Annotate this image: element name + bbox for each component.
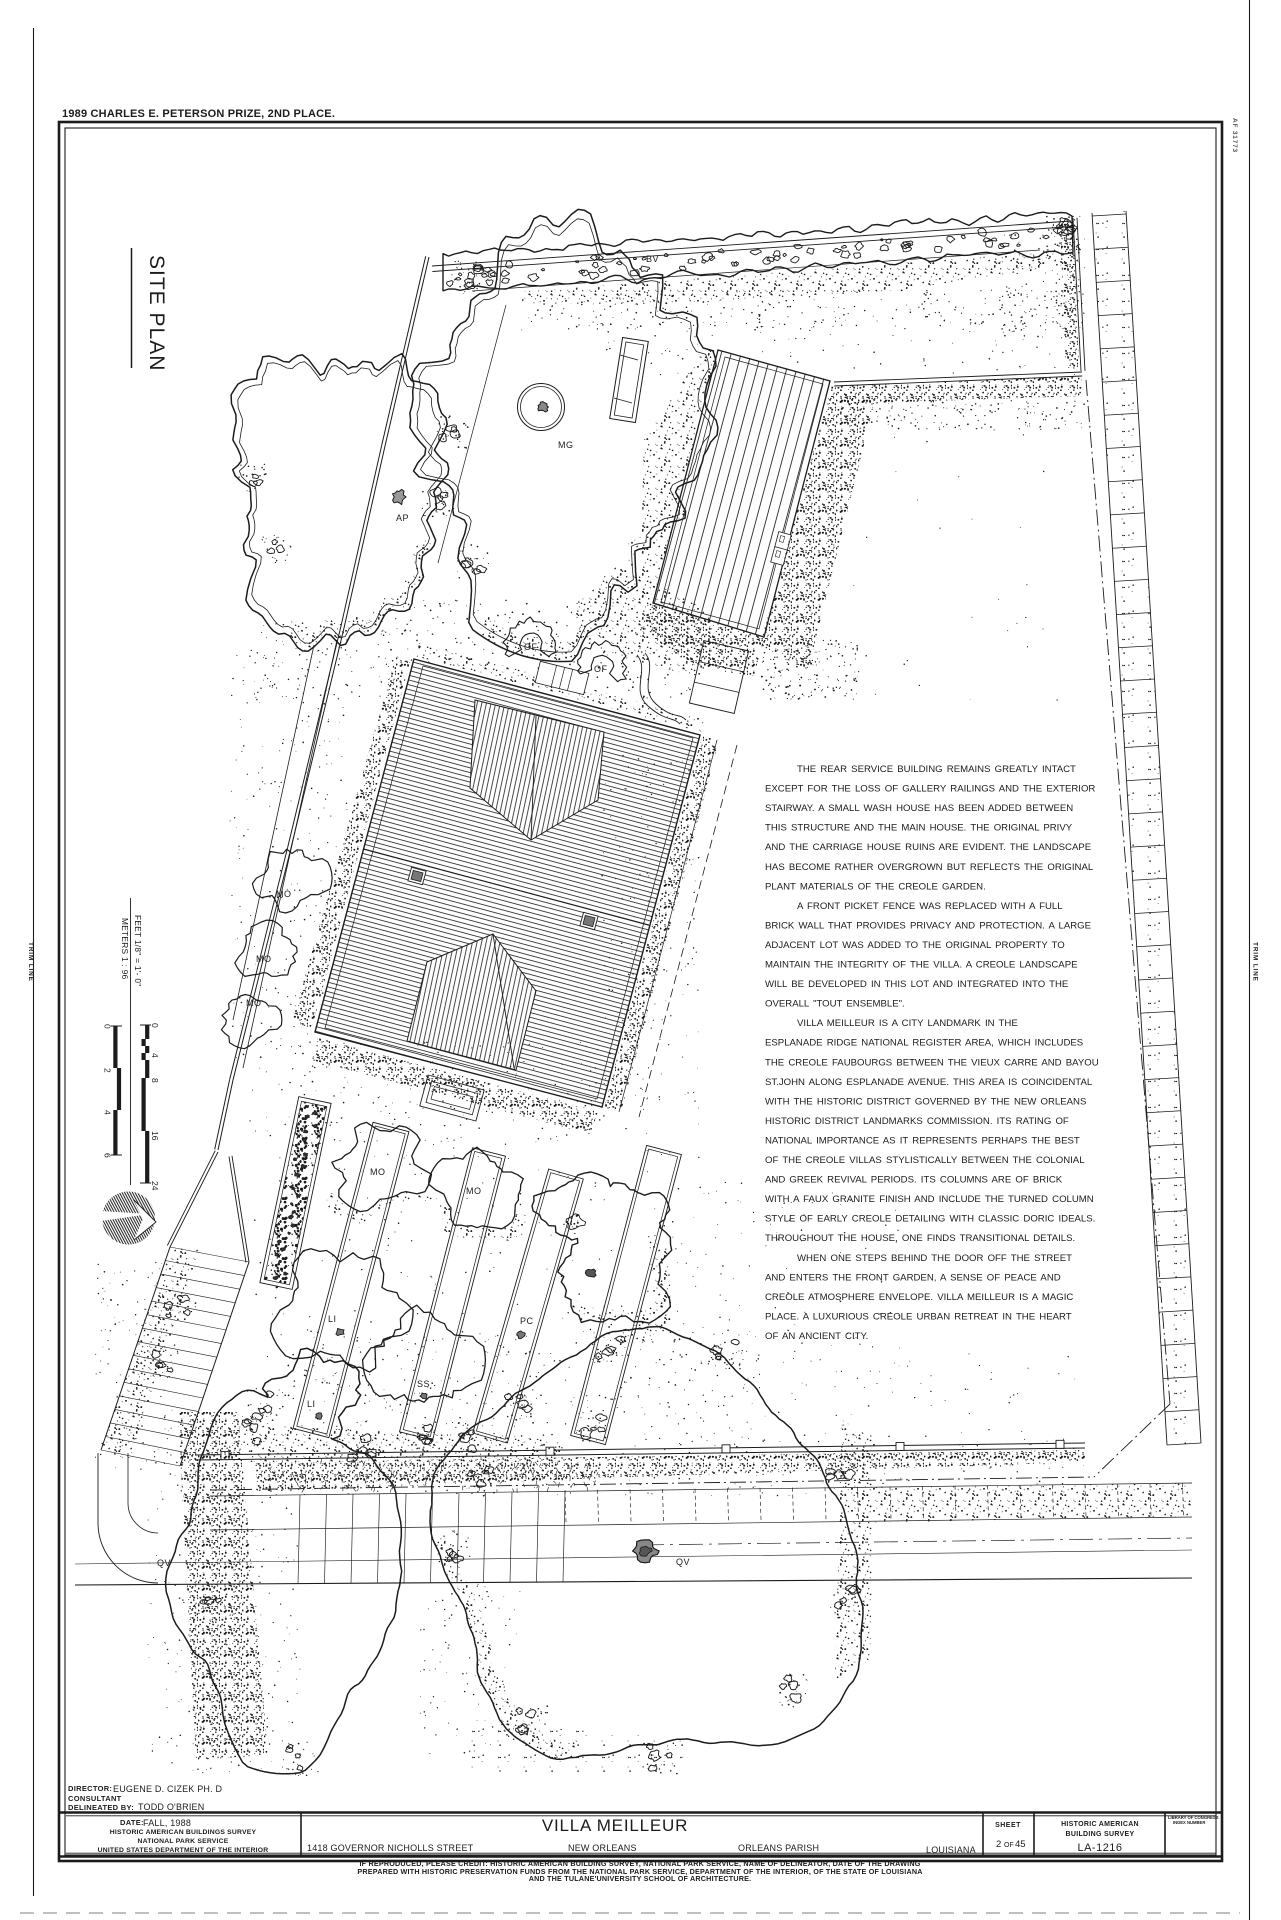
svg-text:STAIRWAY. A SMALL WASH HO: STAIRWAY. A SMALL WASH HOUSE HAS BEEN AD… <box>765 803 1073 814</box>
svg-text:HISTORIC AMERICAN BUILDINGS SU: HISTORIC AMERICAN BUILDINGS SURVEY <box>110 1829 257 1836</box>
svg-text:BV: BV <box>646 254 659 264</box>
svg-text:6: 6 <box>103 1153 113 1158</box>
svg-text:2: 2 <box>996 1839 1001 1850</box>
svg-text:HISTORIC DISTRICT LANDMARKS: HISTORIC DISTRICT LANDMARKS COMMISSION. … <box>765 1116 1069 1127</box>
svg-text:THE REAR SERVICE BUILDING: THE REAR SERVICE BUILDING REMAINS GREATL… <box>797 764 1076 775</box>
svg-text:LI: LI <box>307 1399 316 1409</box>
svg-text:16: 16 <box>150 1131 160 1141</box>
svg-text:MO: MO <box>246 998 262 1008</box>
svg-text:24: 24 <box>150 1181 160 1191</box>
svg-text:PLACE. A LUXURIOUS CREOLE: PLACE. A LUXURIOUS CREOLE URBAN RETREAT … <box>765 1311 1072 1322</box>
svg-text:HISTORIC AMERICAN: HISTORIC AMERICAN <box>1061 1821 1139 1828</box>
svg-text:OF AN ANCIENT CITY.: OF AN ANCIENT CITY. <box>765 1331 868 1342</box>
svg-text:EUGENE D. CIZEK PH. D: EUGENE D. CIZEK PH. D <box>113 1784 223 1794</box>
svg-text:0: 0 <box>150 1023 160 1028</box>
svg-text:BUILDING SURVEY: BUILDING SURVEY <box>1066 1831 1135 1838</box>
svg-text:TRIM LINE: TRIM LINE <box>27 942 34 982</box>
svg-text:ESPLANADE RIDGE NATIONAL RE: ESPLANADE RIDGE NATIONAL REGISTER AREA, … <box>765 1038 1083 1049</box>
svg-text:FALL, 1988: FALL, 1988 <box>143 1818 191 1828</box>
svg-text:ST.JOHN ALONG ESPLANADE AVE: ST.JOHN ALONG ESPLANADE AVENUE. THIS ARE… <box>765 1077 1093 1088</box>
svg-text:WITH A FAUX GRANITE FINISH: WITH A FAUX GRANITE FINISH AND INCLUDE T… <box>765 1194 1094 1205</box>
svg-text:MO: MO <box>466 1186 482 1196</box>
svg-text:METERS 1 : 96: METERS 1 : 96 <box>120 918 130 980</box>
svg-text:45: 45 <box>1015 1839 1026 1850</box>
svg-text:AP: AP <box>396 513 409 523</box>
svg-text:4: 4 <box>103 1110 113 1115</box>
svg-text:DIRECTOR:: DIRECTOR: <box>68 1784 112 1793</box>
svg-text:SHEET: SHEET <box>995 1822 1021 1829</box>
svg-text:MG: MG <box>558 440 574 450</box>
svg-text:AND ENTERS THE FRONT GARDE: AND ENTERS THE FRONT GARDEN, A SENSE OF … <box>765 1272 1061 1283</box>
svg-text:TODD O'BRIEN: TODD O'BRIEN <box>138 1802 204 1812</box>
svg-text:CREOLE ATMOSPHERE ENVELOPE.: CREOLE ATMOSPHERE ENVELOPE. VILLA MEILLE… <box>765 1292 1073 1303</box>
svg-text:WITH THE HISTORIC DISTRICT: WITH THE HISTORIC DISTRICT GOVERNED BY T… <box>765 1096 1086 1107</box>
svg-text:4: 4 <box>150 1053 160 1058</box>
svg-text:OF: OF <box>524 642 538 652</box>
svg-text:AND GREEK REVIVAL PERIODS.: AND GREEK REVIVAL PERIODS. ITS COLUMNS A… <box>765 1175 1063 1186</box>
svg-text:2: 2 <box>103 1068 113 1073</box>
svg-text:DATE:: DATE: <box>120 1818 144 1827</box>
svg-text:LI: LI <box>328 1314 337 1324</box>
svg-text:8: 8 <box>150 1078 160 1083</box>
svg-text:VILLA MEILLEUR: VILLA MEILLEUR <box>542 1816 688 1835</box>
svg-text:BRICK WALL THAT PROVIDES P: BRICK WALL THAT PROVIDES PRIVACY AND PRO… <box>765 920 1091 931</box>
svg-text:AF 31773: AF 31773 <box>1231 118 1238 153</box>
svg-text:OF: OF <box>594 664 608 674</box>
svg-text:THROUGHOUT THE HOUSE, ONE: THROUGHOUT THE HOUSE, ONE FINDS TRANSITI… <box>765 1233 1075 1244</box>
svg-text:MO: MO <box>256 954 272 964</box>
svg-text:CONSULTANT: CONSULTANT <box>68 1794 122 1803</box>
svg-text:DELINEATED BY:: DELINEATED BY: <box>68 1803 134 1812</box>
svg-text:OF THE CREOLE VILLAS STYLI: OF THE CREOLE VILLAS STYLISTICALLY BETWE… <box>765 1155 1085 1166</box>
svg-text:A FRONT PICKET FENCE WAS: A FRONT PICKET FENCE WAS REPLACED WITH A… <box>797 901 1063 912</box>
svg-text:TRIM LINE: TRIM LINE <box>1252 942 1259 982</box>
svg-text:LA-1216: LA-1216 <box>1077 1842 1122 1854</box>
svg-text:PLANT MATERIALS OF THE CRE: PLANT MATERIALS OF THE CREOLE GARDEN. <box>765 881 986 892</box>
svg-text:AND THE TULANE'UNIVERSITY SCHO: AND THE TULANE'UNIVERSITY SCHOOL OF ARCH… <box>529 1874 752 1883</box>
svg-text:0: 0 <box>103 1024 113 1029</box>
svg-text:EXCEPT FOR THE LOSS OF GA: EXCEPT FOR THE LOSS OF GALLERY RAILINGS … <box>765 784 1095 795</box>
svg-text:OVERALL "TOUT ENSEMBLE".: OVERALL "TOUT ENSEMBLE". <box>765 999 905 1010</box>
svg-text:MAINTAIN THE INTEGRITY OF: MAINTAIN THE INTEGRITY OF THE VILLA. A C… <box>765 960 1078 971</box>
svg-text:MO: MO <box>370 1167 386 1177</box>
svg-text:MO: MO <box>276 889 292 899</box>
svg-text:NATIONAL IMPORTANCE AS IT: NATIONAL IMPORTANCE AS IT REPRESENTS PER… <box>765 1135 1080 1146</box>
svg-text:FEET 1/8" = 1'- 0": FEET 1/8" = 1'- 0" <box>133 915 143 987</box>
svg-text:THE CREOLE FAUBOURGS BETWEE: THE CREOLE FAUBOURGS BETWEEN THE VIEUX C… <box>765 1057 1099 1068</box>
svg-text:ADJACENT LOT WAS ADDED TO: ADJACENT LOT WAS ADDED TO THE ORIGINAL P… <box>765 940 1065 951</box>
svg-text:ORLEANS PARISH: ORLEANS PARISH <box>738 1843 819 1853</box>
svg-text:UNITED STATES DEPARTMENT OF TH: UNITED STATES DEPARTMENT OF THE INTERIOR <box>98 1847 269 1854</box>
svg-text:PC: PC <box>520 1316 534 1326</box>
svg-text:QV: QV <box>676 1557 690 1567</box>
svg-text:LOUISIANA: LOUISIANA <box>926 1845 976 1855</box>
svg-text:1418 GOVERNOR NICHOLLS STRE: 1418 GOVERNOR NICHOLLS STREET <box>307 1843 474 1853</box>
svg-text:STYLE OF EARLY CREOLE DETA: STYLE OF EARLY CREOLE DETAILING WITH CLA… <box>765 1214 1095 1225</box>
svg-text:VILLA MEILLEUR IS A CITY: VILLA MEILLEUR IS A CITY LANDMARK IN THE <box>797 1018 1018 1029</box>
svg-text:NEW ORLEANS: NEW ORLEANS <box>568 1843 637 1853</box>
svg-text:NATIONAL PARK SERVICE: NATIONAL PARK SERVICE <box>138 1838 229 1845</box>
svg-text:WHEN ONE STEPS BEHIND THE: WHEN ONE STEPS BEHIND THE DOOR OFF THE S… <box>797 1253 1072 1264</box>
svg-text:INDEX NUMBER: INDEX NUMBER <box>1173 1820 1205 1825</box>
svg-text:THIS STRUCTURE AND THE MAI: THIS STRUCTURE AND THE MAIN HOUSE. THE O… <box>765 823 1073 834</box>
svg-text:HAS BECOME RATHER OVERGROWN: HAS BECOME RATHER OVERGROWN BUT REFLECTS… <box>765 862 1094 873</box>
svg-text:AND THE CARRIAGE HOUSE RUI: AND THE CARRIAGE HOUSE RUINS ARE EVIDENT… <box>765 842 1091 853</box>
svg-text:WILL BE DEVELOPED IN THIS: WILL BE DEVELOPED IN THIS LOT AND INTEGR… <box>765 979 1068 990</box>
svg-text:SITE PLAN: SITE PLAN <box>145 255 168 371</box>
svg-text:OF: OF <box>1004 1842 1014 1849</box>
svg-text:1989 CHARLES E. PETERSON PRIZE: 1989 CHARLES E. PETERSON PRIZE, 2ND PLAC… <box>62 108 335 120</box>
